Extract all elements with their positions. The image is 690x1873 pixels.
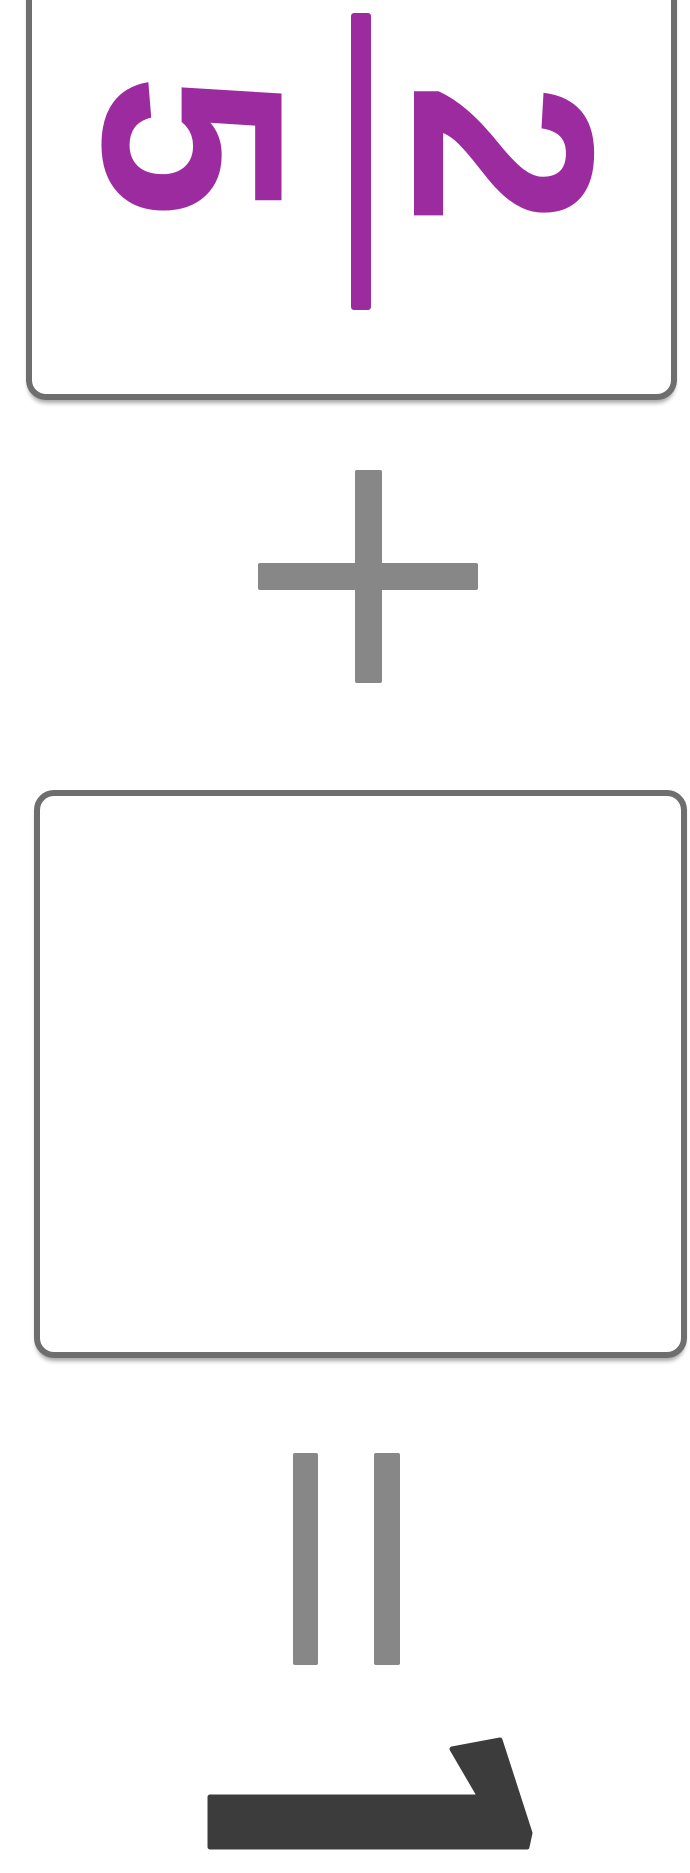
- answer-box[interactable]: [34, 790, 687, 1358]
- equals-icon: [374, 1453, 400, 1665]
- submit-arrow-button[interactable]: [205, 1722, 540, 1852]
- fraction-numerator: 2: [398, 49, 608, 259]
- math-exercise-canvas: 5 2: [0, 0, 690, 1873]
- equals-icon: [293, 1453, 318, 1665]
- fraction-denominator: 5: [88, 41, 298, 251]
- checkmark-arrow-icon: [205, 1722, 540, 1852]
- plus-icon: [355, 470, 382, 683]
